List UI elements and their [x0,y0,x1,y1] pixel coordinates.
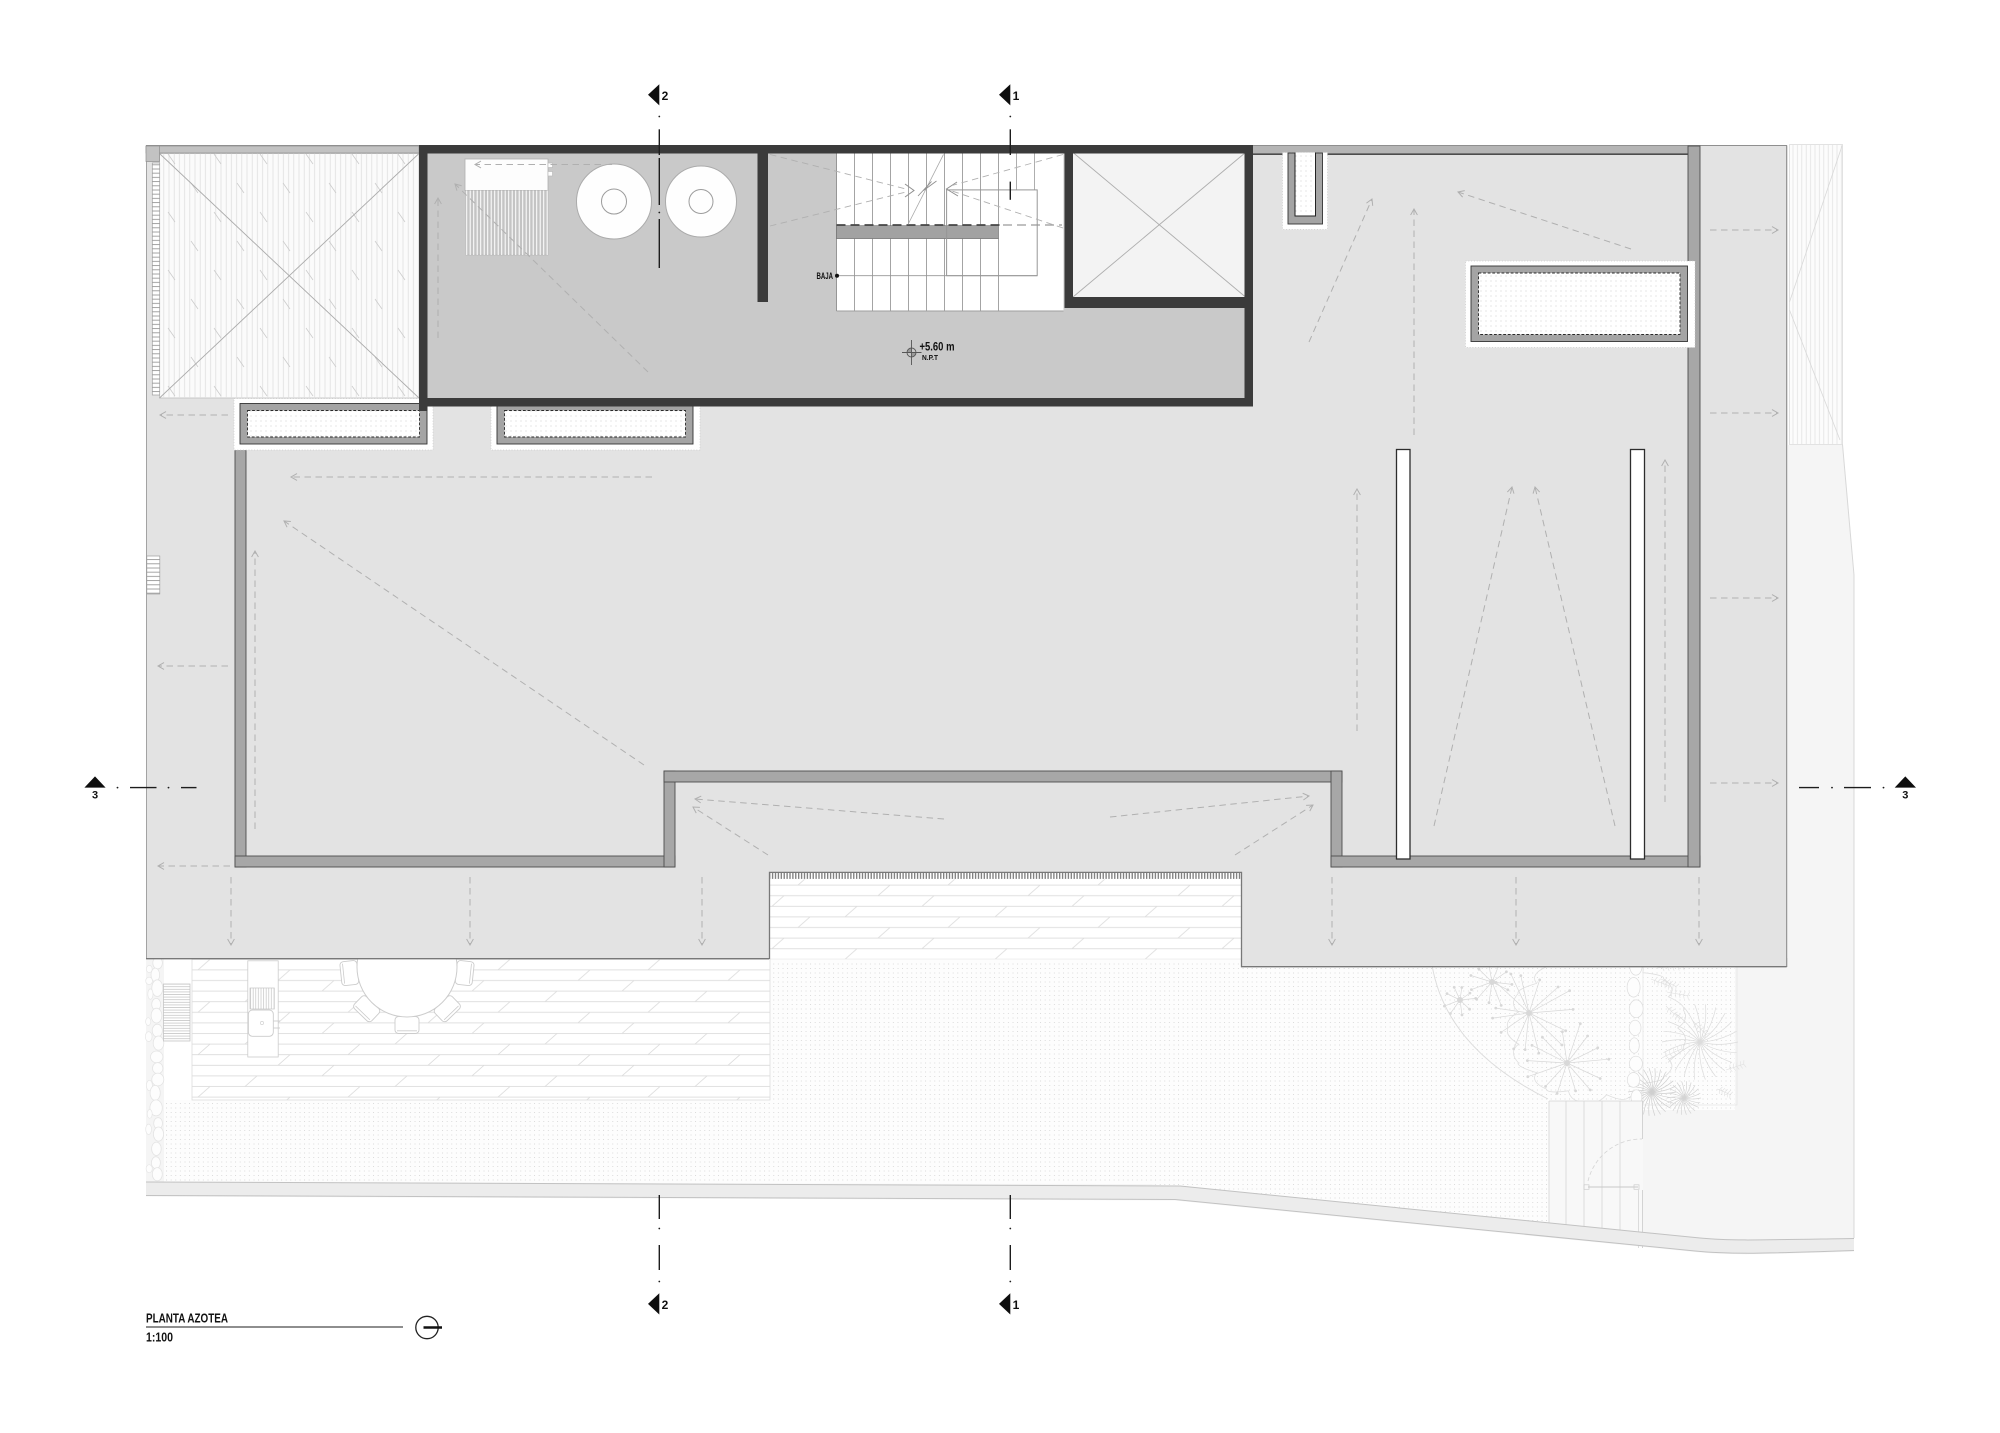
svg-text:PLANTA AZOTEA: PLANTA AZOTEA [146,1311,228,1326]
svg-text:+5.60 m: +5.60 m [920,340,955,354]
svg-text:2: 2 [662,89,669,103]
svg-text:3: 3 [1902,790,1908,802]
svg-text:2: 2 [662,1298,669,1312]
svg-text:3: 3 [92,790,98,802]
svg-text:1: 1 [1013,89,1020,103]
svg-text:1: 1 [1013,1298,1020,1312]
svg-text:N.P.T: N.P.T [922,353,938,362]
svg-text:1:100: 1:100 [146,1330,173,1345]
svg-text:BAJA: BAJA [817,271,834,282]
